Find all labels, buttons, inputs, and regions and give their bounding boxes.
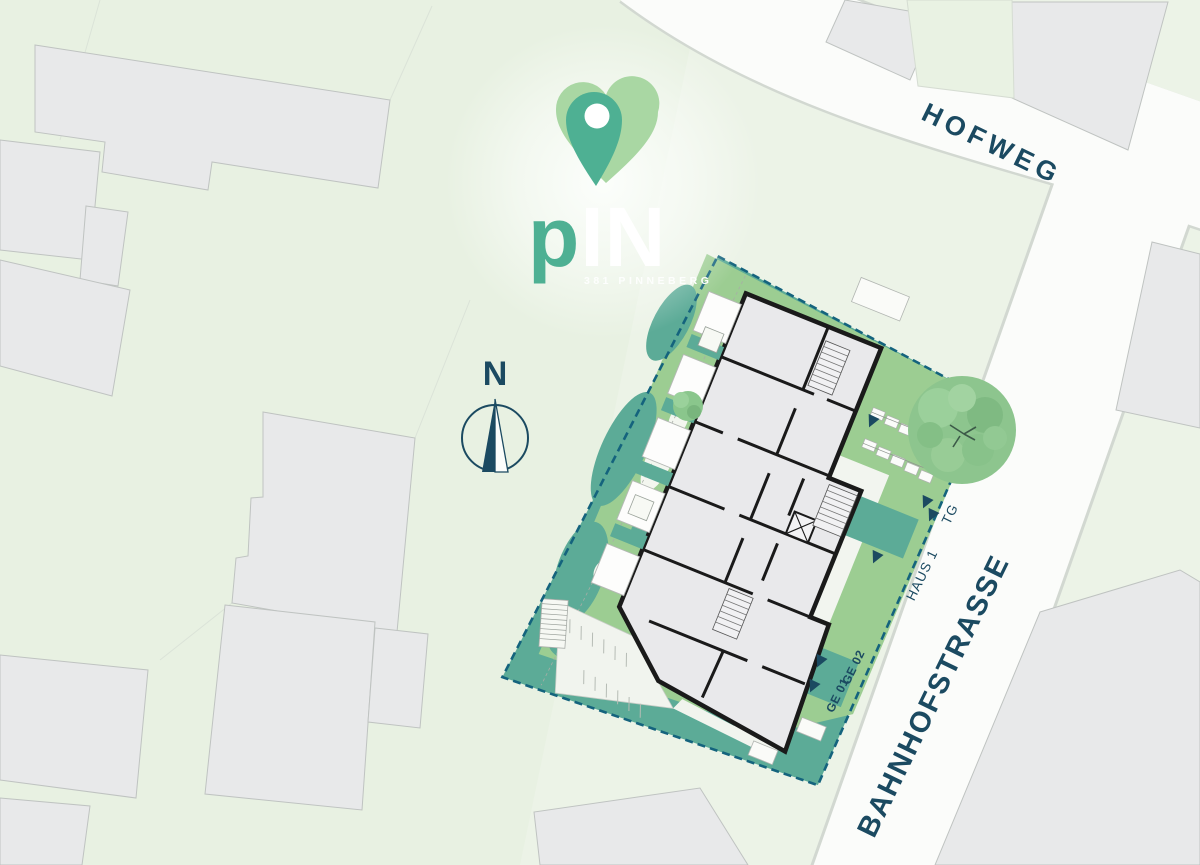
compass-n-label: N [483,355,508,393]
project-logo: pIN 381 PINNEBERG [445,24,761,340]
context-building [0,655,148,798]
context-building [368,628,428,728]
logo-letter-p: p [528,190,580,284]
tree-icon [908,376,1016,484]
logo-subtitle: 381 PINNEBERG [584,275,712,287]
logo-wordmark: pIN [528,190,666,284]
site-plan-canvas: HOFWEG BAHNHOFSTRASSE HAUS 1 TG GE 01 GE… [0,0,1200,865]
parcel-green-northeast [907,0,1014,98]
parking-ramp [539,599,568,649]
site-plan-page: HOFWEG BAHNHOFSTRASSE HAUS 1 TG GE 01 GE… [0,0,1200,865]
tree-icon-small [673,391,703,421]
logo-letters-in: IN [580,190,666,284]
context-building [0,798,90,865]
context-building [205,605,375,810]
logo-glow [445,24,761,340]
